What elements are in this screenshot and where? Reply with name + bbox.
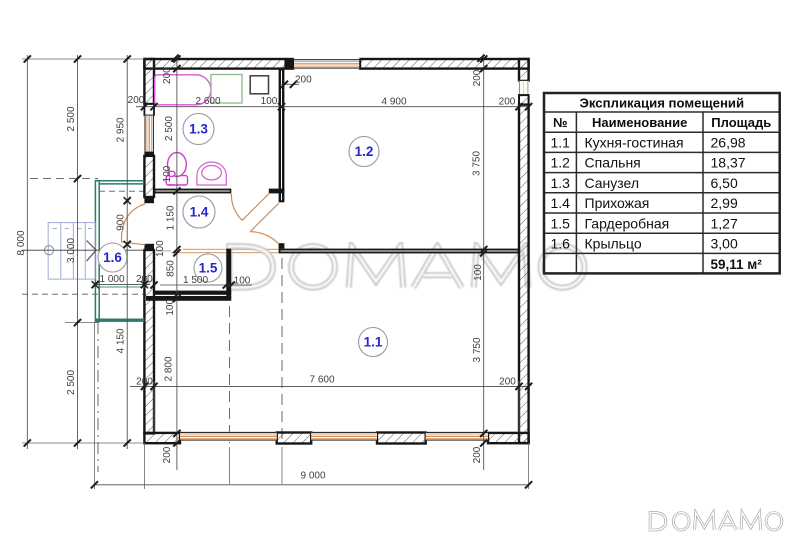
svg-text:Площадь: Площадь	[711, 115, 771, 130]
svg-text:100: 100	[234, 276, 251, 287]
svg-text:200: 200	[472, 69, 483, 86]
svg-text:1.4: 1.4	[190, 205, 209, 220]
svg-text:100: 100	[473, 264, 484, 281]
svg-text:850: 850	[165, 260, 176, 277]
svg-text:Наименование: Наименование	[592, 115, 687, 130]
svg-text:1,27: 1,27	[711, 215, 738, 231]
svg-text:1.5: 1.5	[199, 261, 218, 276]
svg-text:Кухня-гостиная: Кухня-гостиная	[585, 135, 684, 151]
svg-text:1.6: 1.6	[550, 236, 570, 252]
svg-text:1.1: 1.1	[550, 135, 570, 151]
svg-text:1.1: 1.1	[364, 335, 383, 350]
svg-text:1.2: 1.2	[550, 155, 570, 171]
svg-text:200: 200	[136, 274, 153, 285]
svg-text:200: 200	[499, 96, 516, 107]
svg-text:Спальня: Спальня	[585, 155, 641, 171]
svg-text:59,11 м²: 59,11 м²	[711, 257, 763, 272]
svg-text:2,99: 2,99	[711, 195, 738, 211]
svg-text:1.3: 1.3	[550, 175, 570, 191]
svg-text:900: 900	[115, 214, 126, 231]
svg-text:1.4: 1.4	[550, 195, 570, 211]
svg-text:200: 200	[128, 95, 145, 106]
svg-text:200: 200	[162, 67, 173, 84]
svg-text:1.2: 1.2	[355, 144, 374, 159]
svg-text:200: 200	[295, 75, 312, 86]
svg-text:6,50: 6,50	[711, 175, 738, 191]
svg-text:3 750: 3 750	[472, 337, 483, 362]
svg-text:26,98: 26,98	[711, 135, 746, 151]
svg-text:2 950: 2 950	[115, 117, 126, 142]
svg-text:2 800: 2 800	[163, 356, 174, 381]
svg-text:100: 100	[155, 240, 166, 257]
svg-text:100: 100	[261, 96, 278, 107]
svg-text:1.3: 1.3	[189, 122, 208, 137]
svg-text:1 000: 1 000	[100, 274, 125, 285]
svg-text:200: 200	[499, 377, 516, 388]
svg-text:9 000: 9 000	[300, 470, 325, 481]
svg-text:2 500: 2 500	[164, 116, 175, 141]
svg-text:Санузел: Санузел	[585, 175, 640, 191]
svg-text:Экспликация помещений: Экспликация помещений	[579, 96, 744, 111]
svg-text:3,00: 3,00	[711, 236, 738, 252]
svg-text:Гардеробная: Гардеробная	[585, 215, 670, 231]
svg-text:Прихожая: Прихожая	[585, 195, 650, 211]
svg-text:2 600: 2 600	[195, 96, 220, 107]
svg-text:2 500: 2 500	[66, 106, 77, 131]
svg-text:3 750: 3 750	[471, 151, 482, 176]
svg-text:4 150: 4 150	[115, 328, 126, 353]
svg-text:100: 100	[165, 299, 176, 316]
svg-text:4 900: 4 900	[381, 96, 406, 107]
svg-text:2 500: 2 500	[66, 370, 77, 395]
svg-text:1.5: 1.5	[550, 215, 570, 231]
svg-text:№: №	[553, 115, 568, 130]
svg-text:200: 200	[472, 446, 483, 463]
svg-text:3 000: 3 000	[66, 238, 77, 263]
svg-text:8 000: 8 000	[16, 230, 27, 255]
svg-text:100: 100	[162, 165, 173, 182]
svg-text:1.6: 1.6	[103, 250, 122, 265]
svg-text:1 150: 1 150	[165, 205, 176, 230]
svg-text:200: 200	[136, 377, 153, 388]
svg-text:1 500: 1 500	[183, 275, 208, 286]
svg-text:18,37: 18,37	[711, 155, 746, 171]
svg-text:200: 200	[162, 446, 173, 463]
svg-text:7 600: 7 600	[309, 374, 334, 385]
svg-text:Крыльцо: Крыльцо	[585, 236, 642, 252]
